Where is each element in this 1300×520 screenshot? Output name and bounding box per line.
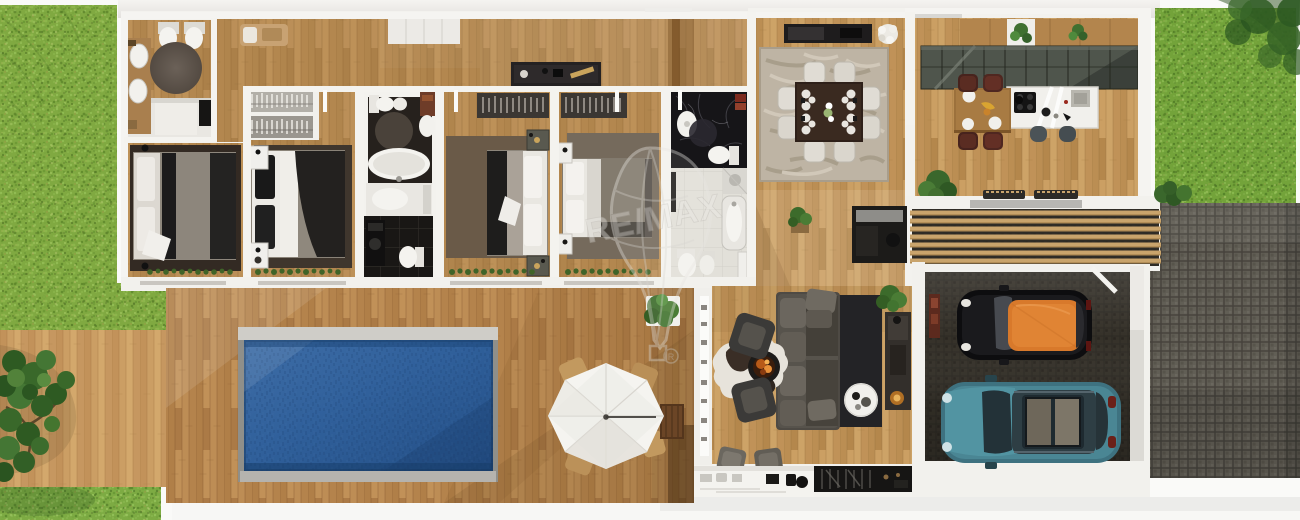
svg-text:R: R <box>668 352 675 362</box>
